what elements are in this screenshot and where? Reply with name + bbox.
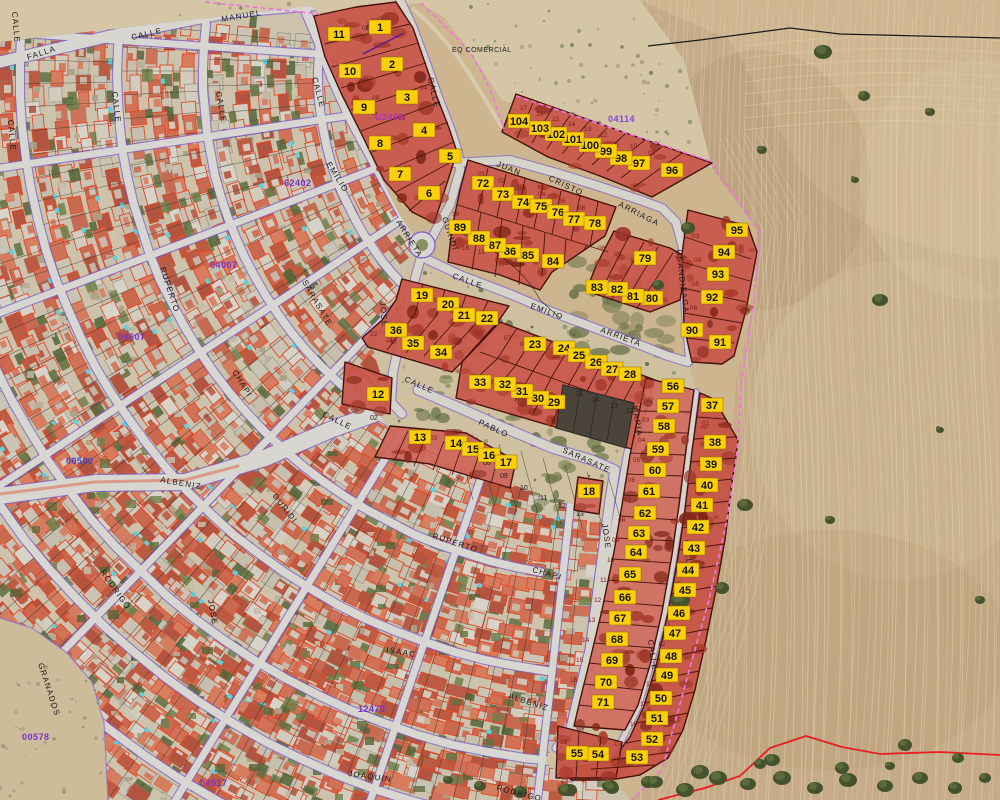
svg-text:23: 23 bbox=[529, 339, 541, 351]
svg-text:83: 83 bbox=[591, 282, 603, 294]
svg-text:06: 06 bbox=[628, 477, 636, 484]
svg-text:61: 61 bbox=[643, 486, 655, 498]
svg-text:25: 25 bbox=[573, 350, 585, 362]
svg-text:10: 10 bbox=[607, 557, 615, 564]
svg-text:13: 13 bbox=[588, 617, 596, 624]
svg-text:19: 19 bbox=[452, 211, 460, 218]
svg-text:74: 74 bbox=[517, 197, 530, 209]
svg-text:63: 63 bbox=[633, 528, 645, 540]
svg-text:32: 32 bbox=[499, 379, 511, 391]
svg-text:3: 3 bbox=[404, 92, 410, 104]
svg-text:5: 5 bbox=[447, 151, 453, 163]
svg-text:67: 67 bbox=[614, 613, 626, 625]
svg-text:16: 16 bbox=[536, 111, 544, 118]
svg-text:35: 35 bbox=[407, 338, 419, 350]
svg-text:12: 12 bbox=[626, 408, 634, 415]
svg-text:02: 02 bbox=[646, 397, 654, 404]
svg-text:07: 07 bbox=[624, 497, 632, 504]
svg-text:85: 85 bbox=[522, 250, 534, 262]
svg-text:04: 04 bbox=[420, 85, 428, 92]
svg-text:15: 15 bbox=[552, 116, 560, 123]
svg-text:91: 91 bbox=[714, 337, 726, 349]
svg-text:04: 04 bbox=[538, 191, 546, 198]
svg-text:12: 12 bbox=[372, 389, 384, 401]
svg-text:00578: 00578 bbox=[22, 732, 50, 742]
svg-text:09: 09 bbox=[500, 473, 508, 480]
svg-text:41: 41 bbox=[696, 500, 708, 512]
svg-text:97: 97 bbox=[633, 158, 645, 170]
svg-text:16: 16 bbox=[630, 721, 638, 728]
svg-text:57: 57 bbox=[662, 401, 674, 413]
svg-text:11: 11 bbox=[333, 29, 345, 41]
svg-text:28: 28 bbox=[624, 369, 636, 381]
svg-text:59: 59 bbox=[652, 444, 664, 456]
svg-text:84: 84 bbox=[547, 256, 560, 268]
svg-text:21: 21 bbox=[386, 337, 394, 344]
svg-text:40: 40 bbox=[701, 480, 713, 492]
svg-text:75: 75 bbox=[535, 201, 547, 213]
svg-text:94: 94 bbox=[718, 247, 731, 259]
svg-text:55: 55 bbox=[571, 748, 583, 760]
svg-text:21: 21 bbox=[458, 310, 470, 322]
svg-text:54: 54 bbox=[592, 749, 605, 761]
svg-text:1: 1 bbox=[377, 22, 383, 34]
svg-text:09: 09 bbox=[612, 537, 620, 544]
svg-text:12: 12 bbox=[594, 597, 602, 604]
svg-text:65: 65 bbox=[624, 569, 636, 581]
svg-text:14: 14 bbox=[582, 637, 590, 644]
svg-text:02: 02 bbox=[370, 415, 378, 422]
svg-text:16: 16 bbox=[462, 245, 470, 252]
svg-text:19: 19 bbox=[416, 290, 428, 302]
svg-text:33: 33 bbox=[474, 377, 486, 389]
svg-text:43: 43 bbox=[688, 543, 700, 555]
svg-text:14: 14 bbox=[568, 121, 576, 128]
svg-text:103: 103 bbox=[531, 123, 549, 135]
svg-text:69: 69 bbox=[606, 655, 618, 667]
svg-text:04517: 04517 bbox=[200, 778, 228, 788]
svg-text:2: 2 bbox=[389, 59, 395, 71]
svg-text:08: 08 bbox=[618, 517, 626, 524]
svg-text:27: 27 bbox=[606, 364, 618, 376]
svg-text:53: 53 bbox=[631, 752, 643, 764]
svg-text:80: 80 bbox=[646, 293, 658, 305]
svg-text:11: 11 bbox=[600, 577, 607, 584]
svg-text:09: 09 bbox=[614, 251, 622, 258]
svg-text:10: 10 bbox=[630, 143, 638, 150]
svg-text:81: 81 bbox=[627, 291, 639, 303]
svg-text:58: 58 bbox=[658, 421, 670, 433]
svg-text:26: 26 bbox=[590, 357, 602, 369]
svg-text:49: 49 bbox=[661, 670, 673, 682]
svg-text:12: 12 bbox=[558, 503, 566, 510]
svg-text:01: 01 bbox=[702, 420, 710, 427]
svg-text:88: 88 bbox=[473, 233, 485, 245]
svg-text:77: 77 bbox=[568, 214, 580, 226]
svg-text:62402: 62402 bbox=[284, 178, 312, 188]
svg-text:45: 45 bbox=[679, 585, 691, 597]
svg-text:15: 15 bbox=[467, 444, 479, 456]
svg-text:99: 99 bbox=[600, 146, 612, 158]
svg-text:06: 06 bbox=[578, 205, 586, 212]
svg-text:11: 11 bbox=[540, 495, 547, 502]
svg-text:04: 04 bbox=[694, 257, 702, 264]
svg-text:07: 07 bbox=[504, 335, 512, 342]
svg-text:66: 66 bbox=[619, 592, 631, 604]
svg-text:71: 71 bbox=[597, 697, 609, 709]
svg-text:64: 64 bbox=[630, 547, 643, 559]
svg-text:73: 73 bbox=[497, 189, 509, 201]
svg-text:68: 68 bbox=[611, 634, 623, 646]
svg-text:05: 05 bbox=[692, 281, 700, 288]
svg-text:12: 12 bbox=[658, 641, 666, 648]
svg-text:03: 03 bbox=[642, 417, 650, 424]
svg-text:90: 90 bbox=[686, 325, 698, 337]
svg-text:89: 89 bbox=[454, 222, 466, 234]
svg-text:20: 20 bbox=[442, 299, 454, 311]
svg-text:50: 50 bbox=[655, 693, 667, 705]
svg-text:87: 87 bbox=[489, 240, 501, 252]
svg-text:22: 22 bbox=[481, 313, 493, 325]
svg-text:EQ COMERCIAL: EQ COMERCIAL bbox=[452, 47, 512, 54]
svg-text:48: 48 bbox=[665, 651, 677, 663]
svg-text:30: 30 bbox=[532, 393, 544, 405]
svg-text:16: 16 bbox=[570, 677, 578, 684]
svg-text:05: 05 bbox=[558, 198, 566, 205]
svg-text:92: 92 bbox=[706, 292, 718, 304]
svg-text:02: 02 bbox=[498, 178, 506, 185]
svg-text:04114: 04114 bbox=[608, 114, 635, 124]
svg-text:9: 9 bbox=[361, 102, 367, 114]
svg-text:79: 79 bbox=[639, 253, 651, 265]
svg-text:96: 96 bbox=[666, 165, 678, 177]
svg-text:13: 13 bbox=[414, 432, 426, 444]
svg-text:56: 56 bbox=[667, 381, 679, 393]
svg-text:03: 03 bbox=[692, 233, 700, 240]
svg-text:4: 4 bbox=[421, 125, 428, 137]
svg-text:34: 34 bbox=[435, 347, 448, 359]
svg-text:13: 13 bbox=[584, 126, 592, 133]
svg-text:10: 10 bbox=[344, 66, 356, 78]
svg-text:7: 7 bbox=[397, 169, 403, 181]
svg-text:19: 19 bbox=[560, 739, 568, 746]
svg-text:31: 31 bbox=[516, 386, 528, 398]
svg-text:44: 44 bbox=[682, 565, 695, 577]
svg-text:15: 15 bbox=[576, 657, 584, 664]
svg-text:17: 17 bbox=[500, 457, 512, 469]
svg-text:95: 95 bbox=[731, 225, 743, 237]
svg-text:10: 10 bbox=[520, 485, 528, 492]
svg-text:93: 93 bbox=[712, 269, 724, 281]
svg-text:52: 52 bbox=[646, 734, 658, 746]
svg-text:08: 08 bbox=[598, 245, 606, 252]
svg-text:22: 22 bbox=[370, 331, 378, 338]
svg-text:37: 37 bbox=[706, 400, 718, 412]
svg-text:78: 78 bbox=[589, 218, 601, 230]
svg-text:15: 15 bbox=[640, 701, 648, 708]
svg-text:6: 6 bbox=[426, 188, 432, 200]
svg-text:04: 04 bbox=[638, 437, 646, 444]
svg-text:17: 17 bbox=[614, 741, 622, 748]
svg-text:104: 104 bbox=[510, 116, 529, 128]
svg-text:8: 8 bbox=[377, 138, 383, 150]
svg-text:62: 62 bbox=[639, 508, 651, 520]
svg-text:04507: 04507 bbox=[118, 332, 146, 342]
svg-text:36: 36 bbox=[390, 325, 402, 337]
svg-text:42: 42 bbox=[692, 522, 704, 534]
svg-text:17: 17 bbox=[520, 105, 528, 112]
svg-text:12475: 12475 bbox=[358, 704, 386, 714]
svg-text:13: 13 bbox=[576, 511, 584, 518]
svg-text:14: 14 bbox=[592, 397, 600, 404]
svg-text:51: 51 bbox=[651, 713, 663, 725]
svg-text:16: 16 bbox=[483, 450, 495, 462]
svg-text:00500: 00500 bbox=[66, 456, 94, 466]
svg-text:76: 76 bbox=[552, 207, 564, 219]
svg-text:47: 47 bbox=[669, 628, 681, 640]
svg-text:38: 38 bbox=[709, 437, 721, 449]
svg-text:82: 82 bbox=[611, 284, 623, 296]
svg-text:03: 03 bbox=[518, 185, 526, 192]
svg-text:04007: 04007 bbox=[210, 260, 238, 270]
svg-text:05: 05 bbox=[633, 457, 641, 464]
svg-text:70: 70 bbox=[600, 677, 612, 689]
svg-text:39: 39 bbox=[705, 459, 717, 471]
svg-text:18: 18 bbox=[583, 486, 595, 498]
svg-text:46: 46 bbox=[673, 608, 685, 620]
svg-text:14: 14 bbox=[646, 681, 654, 688]
svg-text:14: 14 bbox=[450, 438, 463, 450]
svg-text:29: 29 bbox=[548, 397, 560, 409]
svg-text:72: 72 bbox=[477, 178, 489, 190]
svg-text:15: 15 bbox=[575, 391, 583, 398]
svg-text:13: 13 bbox=[610, 403, 618, 410]
svg-text:60: 60 bbox=[649, 465, 661, 477]
svg-text:U2405: U2405 bbox=[375, 112, 404, 122]
